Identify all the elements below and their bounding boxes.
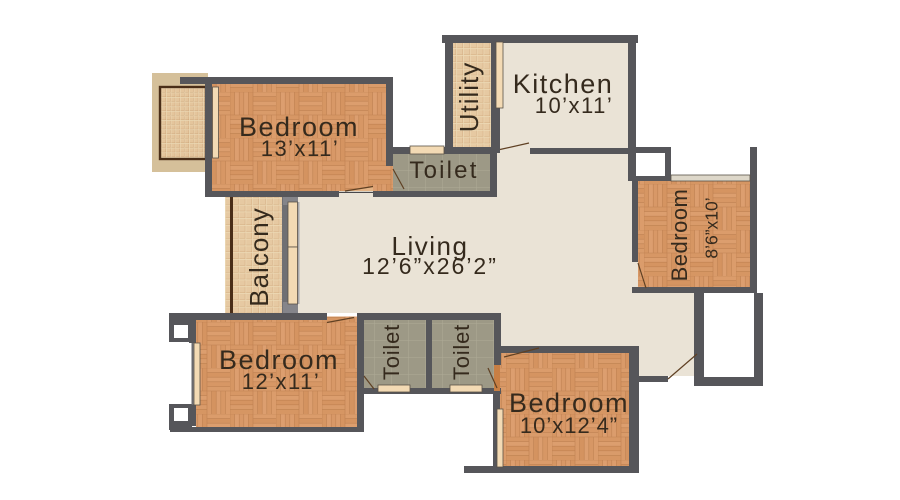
svg-text:Bedroom: Bedroom [667, 189, 692, 282]
svg-text:Toilet: Toilet [449, 324, 474, 380]
svg-text:Balcony: Balcony [244, 207, 274, 307]
svg-text:Utility: Utility [454, 62, 484, 133]
svg-text:12’x11’: 12’x11’ [242, 369, 321, 394]
svg-text:10’x12’4”: 10’x12’4” [520, 413, 618, 438]
svg-text:Toilet: Toilet [409, 157, 478, 184]
svg-text:Toilet: Toilet [379, 324, 404, 380]
svg-text:13’x11’: 13’x11’ [261, 136, 340, 161]
svg-text:10’x11’: 10’x11’ [535, 93, 614, 118]
svg-text:12’6”x26’2”: 12’6”x26’2” [362, 253, 498, 279]
svg-text:8’6”x10’: 8’6”x10’ [702, 197, 722, 258]
